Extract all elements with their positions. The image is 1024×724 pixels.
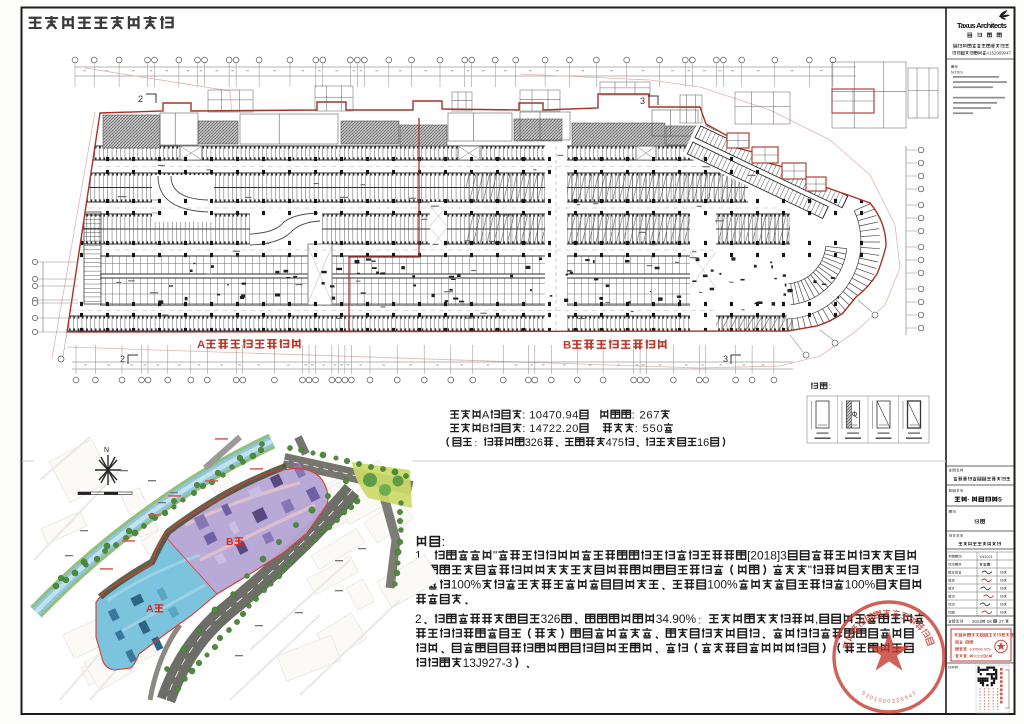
svg-text::: : [829, 381, 831, 391]
svg-text:08: 08 [987, 619, 992, 624]
svg-text:A: A [146, 603, 154, 615]
svg-text:2: 2 [138, 94, 143, 104]
svg-text:,: , [815, 612, 818, 626]
svg-text:: 10470.94: : 10470.94 [522, 410, 578, 422]
svg-text:: 100506-005: : 100506-005 [967, 647, 991, 652]
svg-text:·: · [967, 497, 969, 504]
svg-text:YN2021: YN2021 [979, 555, 993, 559]
svg-text:": " [808, 563, 812, 577]
svg-text:B: B [563, 340, 571, 352]
svg-text::: : [963, 640, 964, 645]
svg-text:3: 3 [723, 354, 728, 364]
svg-text:A: A [482, 410, 490, 422]
svg-text:B: B [482, 423, 489, 435]
svg-text:34.90%: 34.90% [656, 612, 697, 626]
svg-text:A152009047: A152009047 [986, 51, 1011, 56]
svg-text:100%: 100% [707, 578, 738, 592]
svg-text:": " [493, 549, 497, 563]
svg-text:100%: 100% [451, 578, 482, 592]
svg-text:[2018]3: [2018]3 [747, 549, 787, 563]
svg-text:3: 3 [892, 699, 896, 705]
svg-text:0: 0 [887, 699, 890, 705]
svg-text:Taxus Architects: Taxus Architects [957, 21, 1007, 30]
svg-text:2021: 2021 [972, 619, 982, 624]
svg-text:16: 16 [697, 437, 709, 449]
svg-text:A: A [197, 339, 205, 351]
svg-text::: : [442, 534, 446, 549]
svg-text:326: 326 [541, 612, 561, 626]
svg-text:5: 5 [998, 497, 1002, 504]
svg-text:475: 475 [606, 437, 624, 449]
svg-text:2023: 2023 [973, 654, 983, 659]
svg-text:NOTES: NOTES [951, 71, 963, 75]
svg-text:27: 27 [999, 619, 1004, 624]
svg-text:: 550: : 550 [635, 423, 663, 435]
svg-text:: 267: : 267 [632, 410, 660, 422]
svg-text:2: 2 [415, 612, 422, 626]
svg-text:N: N [104, 447, 109, 454]
svg-text:13J927-3: 13J927-3 [463, 656, 513, 670]
svg-text:100%: 100% [845, 578, 876, 592]
svg-text:326: 326 [525, 437, 543, 449]
svg-text:3: 3 [640, 96, 645, 106]
svg-text:0: 0 [882, 699, 886, 705]
svg-text:B: B [226, 536, 234, 548]
svg-text::: : [967, 654, 968, 659]
svg-text:: 14722.20: : 14722.20 [522, 423, 578, 435]
svg-text:2: 2 [120, 354, 125, 364]
